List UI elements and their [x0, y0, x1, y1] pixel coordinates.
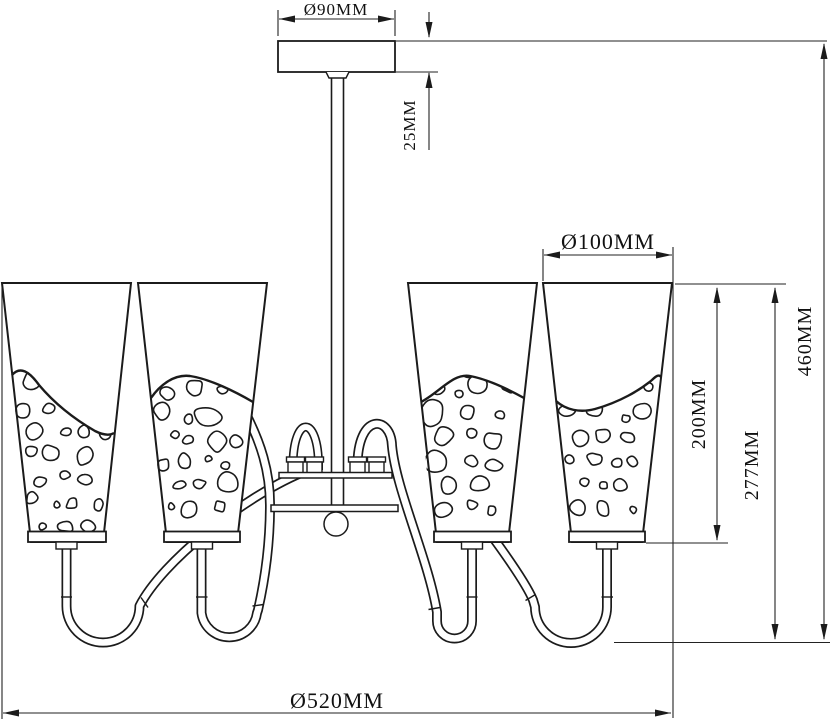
shade-2: [138, 283, 267, 549]
shade-bottom-rim: [434, 532, 511, 543]
shade-3: [408, 283, 537, 549]
canopy-diameter-label: Ø90MM: [304, 0, 369, 19]
hub-upper-plate: [279, 473, 392, 479]
shade-4: [543, 283, 672, 549]
shade-bottom-rim: [28, 532, 106, 543]
shade-stem-connector: [462, 542, 483, 549]
shade-1: [2, 283, 131, 549]
canopy-height-label: 25MM: [400, 99, 419, 150]
chandelier-dimension-drawing: Ø90MM 25MM Ø100MM 200MM 277MM 460MM Ø520…: [0, 0, 831, 720]
finial-ball: [324, 512, 348, 536]
shade-bottom-rim: [569, 532, 645, 543]
down-rod: [332, 76, 344, 506]
technical-drawing-page: Ø90MM 25MM Ø100MM 200MM 277MM 460MM Ø520…: [0, 0, 831, 720]
shade-height-label: 200MM: [688, 379, 710, 450]
shade-stem-connector: [56, 542, 77, 549]
ceiling-canopy: [278, 41, 395, 72]
shade-stem-connector: [192, 542, 213, 549]
hub-connector-blocks: [287, 457, 386, 473]
shade-bottom-rim: [164, 532, 240, 543]
hub-lower-plate: [271, 505, 398, 512]
canopy-neck: [326, 72, 349, 78]
shade-stem-connector: [597, 542, 618, 549]
shade-drop-height-label: 277MM: [741, 430, 763, 501]
total-diameter-label: Ø520MM: [290, 688, 384, 713]
shade-diameter-label: Ø100MM: [561, 229, 655, 254]
chandelier-body: [271, 41, 398, 536]
total-height-label: 460MM: [794, 306, 816, 377]
